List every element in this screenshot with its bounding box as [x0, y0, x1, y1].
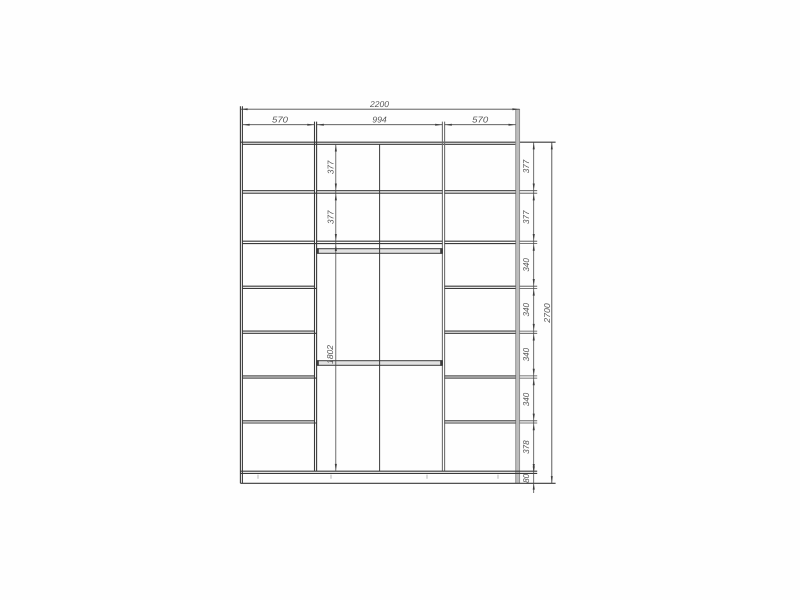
svg-text:80: 80 — [521, 474, 531, 483]
svg-text:340: 340 — [521, 258, 531, 272]
svg-text:1802: 1802 — [325, 345, 335, 364]
svg-text:377: 377 — [521, 159, 531, 173]
svg-text:377: 377 — [326, 160, 336, 174]
svg-text:2700: 2700 — [542, 303, 552, 324]
svg-text:378: 378 — [521, 440, 531, 454]
svg-text:340: 340 — [521, 348, 531, 362]
svg-text:340: 340 — [521, 392, 531, 406]
svg-text:2200: 2200 — [369, 99, 389, 109]
svg-text:994: 994 — [372, 114, 387, 124]
svg-text:340: 340 — [521, 303, 531, 317]
svg-text:570: 570 — [272, 114, 288, 124]
svg-text:377: 377 — [326, 210, 336, 224]
svg-text:570: 570 — [472, 114, 488, 124]
svg-text:377: 377 — [521, 210, 531, 224]
